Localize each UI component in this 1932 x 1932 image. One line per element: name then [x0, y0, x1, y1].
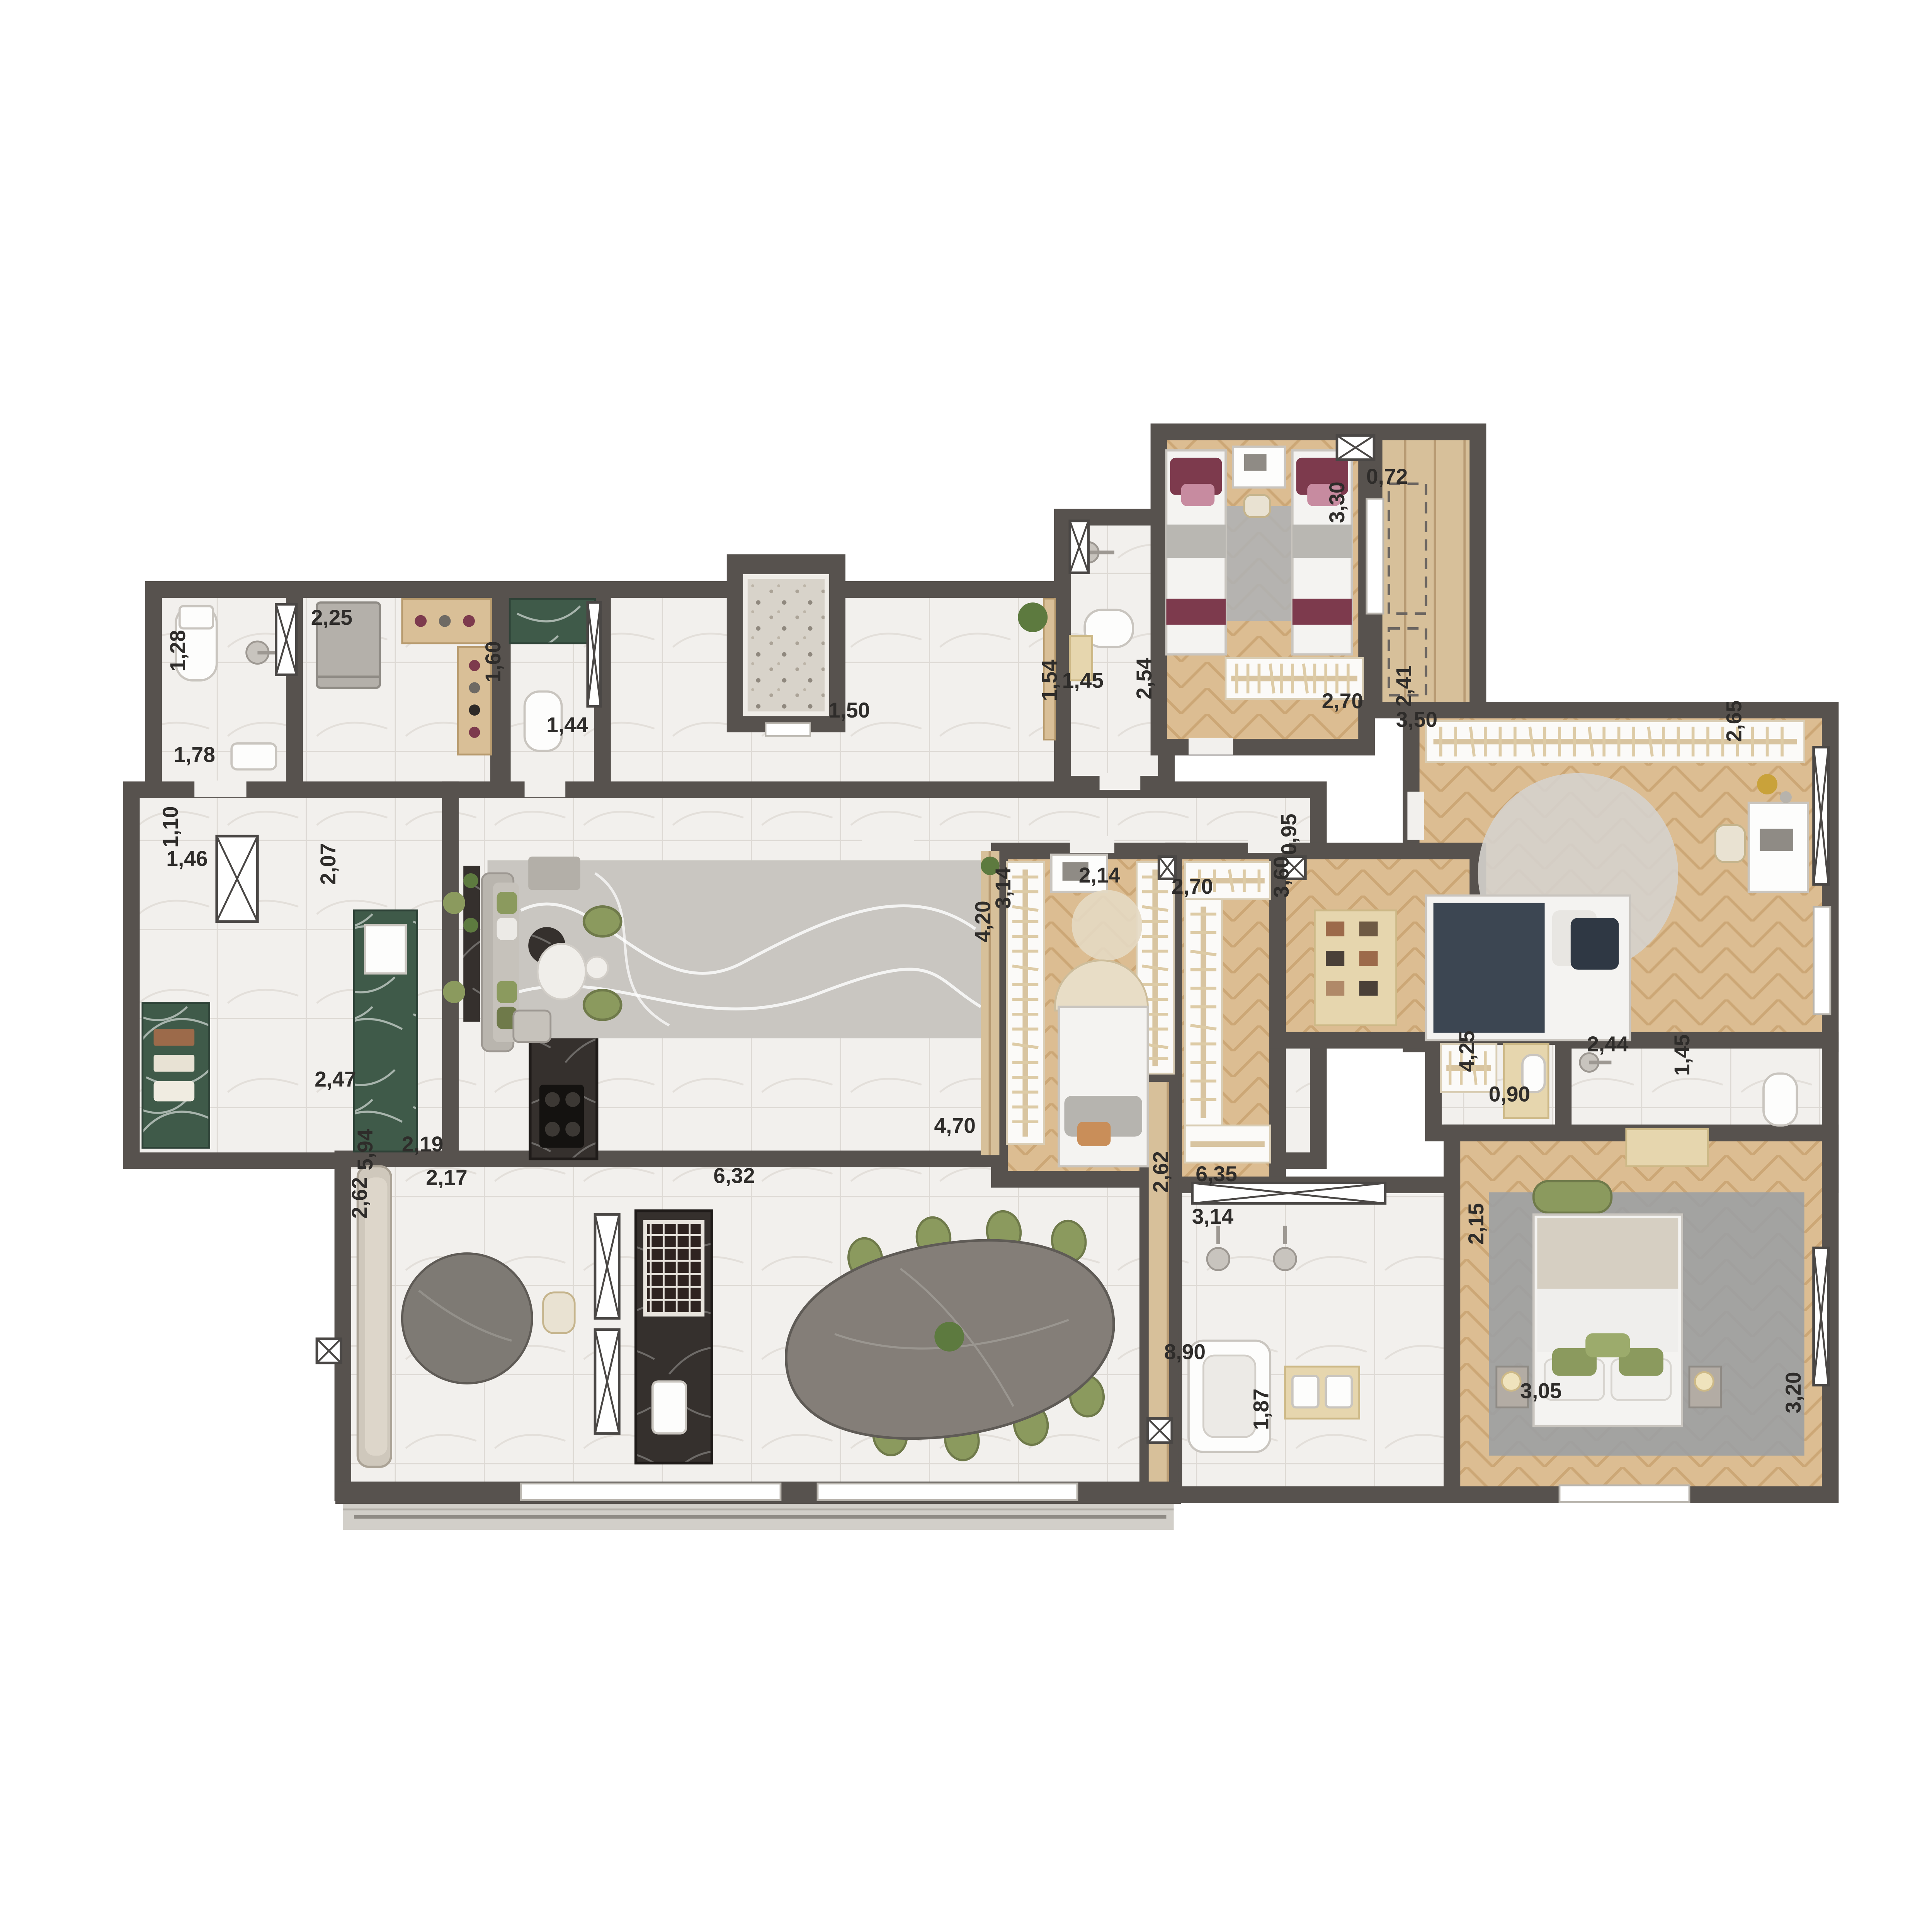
pillow-pink: [1181, 484, 1214, 506]
twin-bed-b: [1293, 451, 1352, 655]
dimension-label: 2,47: [315, 1067, 356, 1091]
dimension-label: 2,65: [1722, 701, 1746, 742]
door-opening: [525, 781, 566, 797]
bottle-icon: [469, 727, 480, 738]
door-opening: [1070, 836, 1114, 853]
dimension-label: 6,32: [713, 1164, 755, 1188]
coffee-table-white: [537, 944, 586, 999]
sliding-door-bedroom-2: [1814, 906, 1830, 1014]
wine-rack-grid: [645, 1222, 703, 1315]
dimension-label: 5,94: [353, 1129, 377, 1170]
blanket-gray: [1293, 525, 1352, 558]
dimension-label: 3,20: [1781, 1372, 1805, 1413]
bottle-icon: [469, 682, 480, 694]
dimension-label: 2,41: [1392, 665, 1416, 706]
dimension-label: 1,28: [166, 630, 190, 671]
sliding-door-terrace-a: [521, 1483, 781, 1500]
sliding-door-balcony-1: [1367, 498, 1383, 614]
window-x-marker: [217, 836, 258, 922]
dimension-label: 2,07: [316, 843, 340, 884]
chair: [543, 1293, 575, 1333]
pillow-orange: [1077, 1122, 1111, 1146]
pillow-navy: [1571, 918, 1619, 969]
dimension-label: 1,54: [1037, 660, 1061, 701]
shoes: [1359, 922, 1378, 936]
toilet-tank: [180, 606, 213, 629]
dimension-label: 2,54: [1132, 658, 1156, 699]
door-opening: [194, 781, 246, 797]
dimension-label: 3,50: [1396, 707, 1437, 731]
green-armchair: [584, 906, 621, 936]
dimension-label: 3,30: [1325, 481, 1349, 523]
plant-icon: [1018, 602, 1048, 632]
door-opening-entry: [862, 832, 914, 851]
door-opening: [1189, 738, 1233, 755]
gold-lamp-icon: [1757, 774, 1777, 794]
desk-chair: [1715, 825, 1745, 862]
dimension-label: 2,62: [348, 1177, 372, 1218]
dimension-label: 3,05: [1520, 1379, 1561, 1403]
window-x-marker: [588, 602, 601, 706]
laundry-basket: [154, 1081, 195, 1102]
green-marble-counter: [510, 599, 595, 643]
shoes: [1359, 981, 1378, 995]
bottle-icon: [439, 615, 451, 627]
folded-towel: [154, 1029, 195, 1046]
plant-icon: [463, 918, 478, 932]
living-room-furniture: [443, 857, 988, 1051]
master-bedroom-furniture: [1489, 1181, 1804, 1456]
duvet-beige: [1537, 1218, 1678, 1289]
bottle-icon: [415, 615, 427, 627]
burner: [565, 1092, 580, 1107]
window-x-marker: [595, 1330, 619, 1434]
green-stool: [443, 892, 465, 914]
window-x-marker: [595, 1214, 619, 1318]
dimension-label: 3,60: [1269, 856, 1293, 898]
window-x-marker: [1814, 1248, 1828, 1385]
dimension-label: 1,87: [1249, 1388, 1273, 1430]
round-jute-rug: [1072, 890, 1142, 960]
ottoman-table: [528, 857, 580, 890]
shower-icon: [1274, 1248, 1296, 1270]
bar-sink: [653, 1381, 686, 1433]
window-x-marker: [1148, 1418, 1172, 1442]
folded-towel: [154, 1055, 195, 1071]
dimension-label: 2,15: [1464, 1203, 1488, 1244]
window-x-marker: [276, 604, 296, 675]
shoes: [1326, 981, 1344, 995]
guest-bed: [1055, 961, 1148, 1167]
bench-cushion: [365, 1177, 388, 1456]
dimension-label: 1,46: [166, 847, 207, 871]
table-lamp-icon: [1695, 1372, 1713, 1391]
dimension-label: 2,17: [426, 1165, 467, 1189]
green-stool: [443, 981, 465, 1003]
elevator-cab-floor: [745, 577, 827, 714]
dimension-label: 2,19: [402, 1132, 443, 1156]
elevator-door: [766, 723, 810, 736]
single-bed: [1426, 896, 1630, 1040]
side-table: [586, 957, 608, 979]
table-lamp-icon: [1502, 1372, 1520, 1391]
closet-hall-furniture: [1315, 910, 1396, 1026]
window-x-marker: [1192, 1183, 1385, 1204]
closet-bedroom-2: [1426, 721, 1804, 762]
green-bench: [1534, 1181, 1612, 1213]
dimension-label: 1,60: [481, 641, 505, 682]
plant-icon: [463, 873, 478, 888]
laptop-icon: [1760, 829, 1793, 851]
dimension-label: 2,70: [1322, 689, 1363, 713]
pillow-green: [497, 981, 517, 1003]
shoes: [1326, 922, 1344, 936]
duvet-navy: [1434, 903, 1545, 1033]
desk-chair: [1244, 495, 1270, 517]
dimension-label: 2,14: [1079, 863, 1121, 887]
throw-wine: [1166, 599, 1226, 625]
pillow-green-center: [1585, 1333, 1630, 1357]
green-armchair: [584, 990, 621, 1020]
dimension-label: 4,25: [1455, 1031, 1479, 1072]
door-opening: [1407, 792, 1424, 840]
vanity-counter: [1626, 1129, 1708, 1166]
console-dark-marble: [463, 866, 480, 1022]
vanity-sink: [1326, 1376, 1352, 1408]
window-x-marker: [1814, 747, 1828, 884]
pillow-white: [497, 918, 517, 940]
round-breakfast-table: [402, 1253, 532, 1383]
vanity-sink: [1293, 1376, 1318, 1408]
green-marble-counter: [143, 1003, 209, 1148]
dimension-label: 2,25: [311, 605, 352, 629]
twin-bed-a: [1166, 451, 1226, 655]
toilet-icon: [1764, 1073, 1797, 1125]
laptop-icon: [1244, 454, 1267, 471]
dimension-label: 2,62: [1149, 1151, 1173, 1192]
dimension-label: 1,45: [1670, 1034, 1694, 1076]
dimension-label: 1,78: [173, 743, 215, 767]
wine-cabinet: [636, 1211, 712, 1463]
burner: [565, 1122, 580, 1136]
burner: [545, 1122, 560, 1136]
dimension-label: 0,72: [1366, 464, 1408, 488]
dimension-label: 0,95: [1277, 813, 1301, 855]
bathtub-inner: [1203, 1355, 1255, 1437]
sink-icon: [231, 743, 276, 769]
dimension-label: 4,20: [971, 901, 995, 942]
dimension-label: 8,90: [1164, 1340, 1206, 1364]
bottle-icon: [463, 615, 475, 627]
blanket-gray: [1166, 525, 1226, 558]
dimension-label: 0,90: [1489, 1082, 1530, 1106]
sofa-chaise: [514, 1010, 551, 1042]
shower-icon: [1207, 1248, 1230, 1270]
dimension-label: 6,35: [1196, 1162, 1237, 1186]
shoes: [1359, 951, 1378, 966]
window-x-marker: [1337, 435, 1374, 459]
burner: [545, 1092, 560, 1107]
sliding-door-master: [1560, 1485, 1689, 1502]
bottle-icon: [469, 660, 480, 671]
dimension-label: 1,44: [546, 713, 588, 737]
dimension-label: 3,14: [1192, 1204, 1234, 1228]
dimension-label: 1,10: [158, 806, 182, 847]
dimension-label: 1,45: [1062, 668, 1104, 692]
bottle-icon: [469, 704, 480, 716]
shoes: [1326, 951, 1344, 966]
window-x-marker: [317, 1339, 341, 1363]
floor-plan-canvas: 1,282,251,781,601,441,501,541,452,543,30…: [39, 39, 1893, 1893]
laundry-sink: [365, 925, 406, 973]
dimension-label: 1,50: [828, 698, 870, 722]
dimension-label: 3,14: [991, 867, 1015, 909]
throw-wine: [1293, 599, 1352, 625]
dimension-label: 2,44: [1587, 1032, 1629, 1056]
sliding-door-terrace-b: [818, 1483, 1077, 1500]
dimension-label: 2,70: [1172, 874, 1213, 898]
window-x-marker: [1070, 521, 1088, 573]
decor-dish: [1780, 791, 1792, 803]
door-opening: [1100, 773, 1141, 790]
pillow-green: [497, 892, 517, 914]
dimension-label: 4,70: [934, 1114, 975, 1138]
